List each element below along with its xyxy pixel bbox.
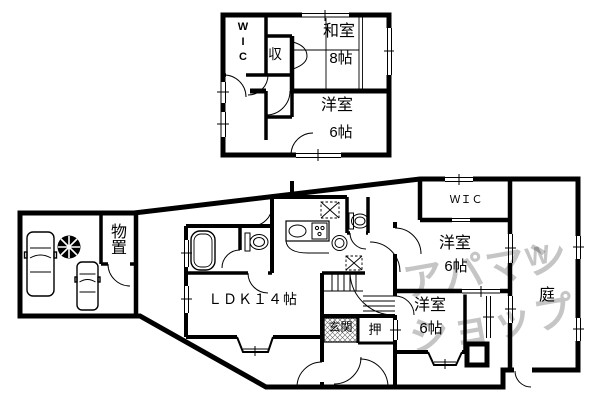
floor2-washitsu-size: 8帖: [314, 51, 368, 66]
genkan-label: 玄関: [324, 321, 357, 333]
floorplan-page: WIC 収 和室 8帖 洋室 6帖 物置 ＬＤＫ１４帖 玄関 押 洋室 6帖 洋…: [0, 0, 600, 400]
floor2-youshitsu-size: 6帖: [314, 125, 368, 140]
floor2-shuno-label: 収: [268, 47, 282, 61]
tree-icon: [58, 236, 81, 259]
ldk-label: ＬＤＫ１４帖: [186, 292, 320, 306]
monooki-label: 物置: [108, 223, 124, 255]
floor2-youshitsu-label: 洋室: [310, 98, 364, 114]
oshiire-label: 押: [363, 323, 387, 336]
floor2-wic-label: WIC: [237, 21, 248, 66]
watermark-logo: W: [523, 238, 555, 273]
floor1-wic-label: ＷＩＣ: [440, 195, 492, 206]
floor2-washitsu-label: 和室: [312, 24, 366, 40]
